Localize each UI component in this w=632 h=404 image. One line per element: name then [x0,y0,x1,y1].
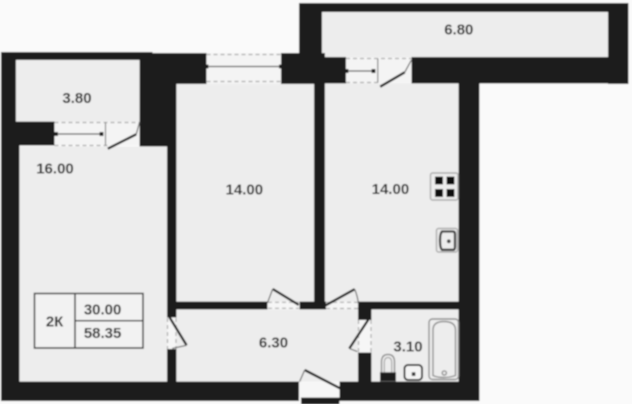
svg-text:30.00: 30.00 [84,302,122,319]
svg-text:14.00: 14.00 [372,181,410,198]
svg-text:2К: 2К [46,313,64,330]
svg-text:3.80: 3.80 [62,90,91,107]
svg-text:6.30: 6.30 [259,334,288,351]
svg-text:3.10: 3.10 [393,338,422,355]
svg-text:14.00: 14.00 [226,181,264,198]
svg-text:16.00: 16.00 [36,161,74,178]
svg-text:58.35: 58.35 [84,325,122,342]
svg-text:6.80: 6.80 [444,22,473,39]
